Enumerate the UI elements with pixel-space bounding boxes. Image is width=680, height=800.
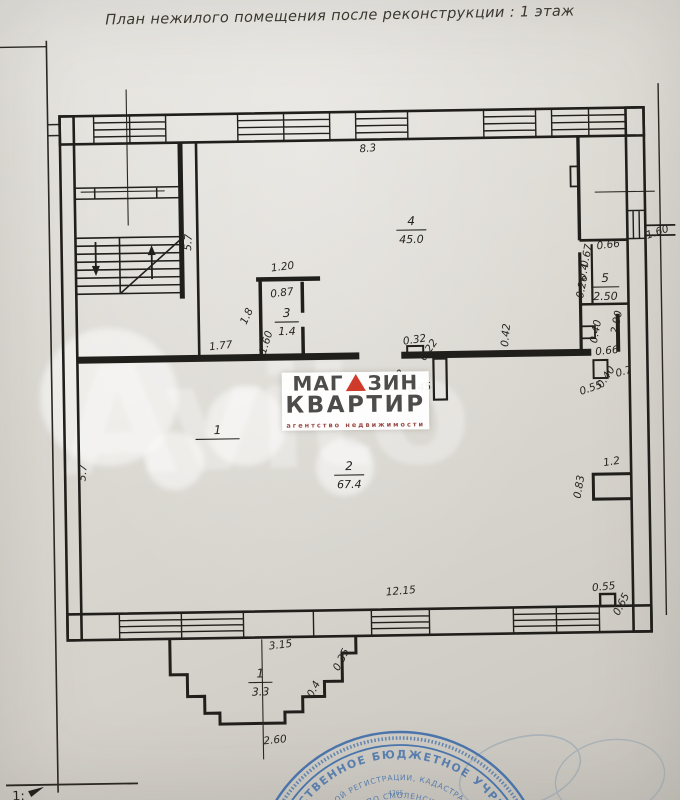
exterior-wall-top [60,107,644,144]
partition-wall [196,142,199,358]
magazin-kvartir-watermark: МАГ ЗИН КВАРТИР агентство недвижимости [282,371,430,431]
dimension-label: 3.15 [268,638,293,653]
dimension-label: 0.83 [572,474,588,499]
room-area: 2.50 [593,290,618,303]
central-wall-left [77,356,359,360]
brand-line2: КВАРТИР [285,393,426,420]
dimension-label: 0.87 [270,286,295,301]
dimension-label: 0.42 [499,323,513,348]
dimension-label: 2.60 [263,733,288,747]
room-number: 1 [214,423,222,437]
frame-line-left [46,41,58,793]
dimension-label: 1.20 [270,260,295,275]
room-number: 2 [345,459,353,473]
room-label-divider [196,439,240,440]
dimension-label: 0.66 [596,238,621,253]
brand-line1-prefix: МАГ [292,373,343,394]
dimension-labels: 8.35.71.200.871.81.601.770.320.220.420.2… [71,137,679,750]
room-area: 45.0 [399,233,424,246]
title-block-line [6,783,138,785]
dimension-label: 0.55 [591,580,616,594]
scanned-floor-plan-page: Avito План нежилого помещения после реко… [0,0,680,800]
dimension-label: 0.66 [595,344,620,358]
brand-line1-suffix: ЗИН [367,373,418,394]
dimension-label: 2.90 [609,309,625,335]
exterior-wall-left [60,116,82,640]
room-number: 1 [256,666,264,680]
room-label: 1 [195,423,239,440]
frame-line-top-left [0,47,46,48]
staircase [75,237,182,295]
brand-line3: агентство недвижимости [286,420,425,429]
dimension-label: 8.3 [359,142,377,155]
exterior-wall-bottom [67,605,651,640]
dimension-label: 1.2 [602,455,621,469]
dimension-label: 5.7 [182,233,195,251]
room-number: 3 [283,306,291,320]
room-number: 5 [601,271,609,285]
scale-label: 1: [12,789,25,800]
room-label: 267.4 [334,459,364,491]
scale-mark [28,787,44,797]
window [627,210,645,238]
red-triangle-logo-icon [345,374,365,391]
room-label: 52.50 [591,271,619,303]
room-label: 445.0 [396,214,426,246]
frame-line-right [658,83,666,615]
wall-niche [593,474,631,500]
room-number: 4 [407,214,415,228]
room-area: 1.4 [278,325,296,338]
dimension-label: 1.8 [238,306,256,327]
dimension-label: 0.35 [331,646,352,673]
room-label: 31.4 [275,306,299,338]
room-label: 13.3 [248,666,272,698]
room-area: 3.3 [252,685,270,698]
wall-stub-left [48,125,60,136]
stamp-center-code: 4765- [388,790,405,797]
room-area: 67.4 [337,478,362,491]
dimension-label: 1.77 [209,339,234,353]
stair-hall-wall [180,143,182,299]
axis-cross [79,89,165,226]
brand-line1: МАГ ЗИН [292,373,418,394]
dimension-label: 0.40 [588,319,604,345]
pier [433,358,447,399]
dimension-label: 5.7 [76,464,89,482]
dimension-label: 12.15 [385,584,416,599]
dimension-label: 0.55 [578,379,604,398]
pillar [600,594,615,606]
